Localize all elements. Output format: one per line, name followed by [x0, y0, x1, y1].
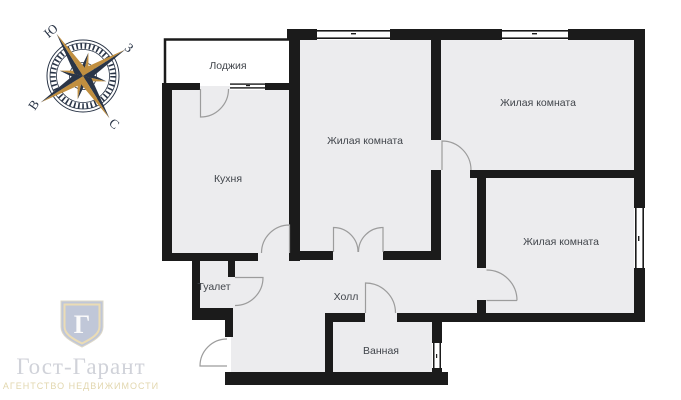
room-label-toilet: Туалет	[197, 281, 230, 293]
logo-title: Гост-Гарант	[16, 354, 145, 379]
wall	[634, 29, 645, 208]
wall	[265, 83, 290, 90]
window	[230, 83, 265, 90]
wall	[289, 29, 300, 261]
compass-long-points	[14, 7, 152, 145]
wall	[431, 170, 441, 252]
window	[317, 29, 390, 40]
room-label-bathroom: Ванная	[363, 345, 399, 357]
compass-letter-east: В	[25, 97, 42, 113]
wall	[225, 320, 233, 337]
floorplan-svg: Лоджия Кухня Жилая комната Жилая комната…	[0, 0, 681, 400]
wall	[477, 174, 486, 268]
wall	[225, 372, 448, 385]
room-label-living-top: Жилая комната	[327, 135, 403, 147]
compass-letter-west: З	[122, 40, 137, 56]
room-label-hall: Холл	[334, 291, 359, 303]
wall	[390, 29, 502, 40]
agency-logo: Г Гост-Гарант АГЕНТСТВО НЕДВИЖИМОСТИ	[3, 301, 159, 391]
wall	[192, 308, 233, 320]
wall	[162, 83, 172, 261]
wall	[431, 29, 441, 140]
window	[432, 343, 442, 368]
room-label-kitchen: Кухня	[214, 173, 242, 185]
wall	[470, 170, 645, 178]
window	[502, 29, 568, 40]
wall	[568, 29, 645, 40]
compass-letter-north: С	[106, 115, 122, 132]
wall	[383, 251, 441, 260]
wall	[289, 251, 333, 260]
compass-letter-south: Ю	[41, 21, 61, 41]
wall	[162, 83, 200, 90]
room-label-living-right: Жилая комната	[500, 97, 576, 109]
door-arc-entrance	[200, 339, 227, 366]
logo-subtitle: АГЕНТСТВО НЕДВИЖИМОСТИ	[3, 381, 159, 391]
logo-emblem-letter: Г	[74, 310, 91, 339]
wall	[162, 253, 258, 261]
room-floor-kitchen	[168, 86, 294, 256]
room-label-loggia: Лоджия	[209, 60, 246, 72]
room-label-living-bottom: Жилая комната	[523, 236, 599, 248]
floorplan-page: Лоджия Кухня Жилая комната Жилая комната…	[0, 0, 681, 400]
window	[634, 208, 645, 268]
compass-rose: Ю З В С	[14, 7, 152, 145]
wall	[432, 313, 442, 343]
